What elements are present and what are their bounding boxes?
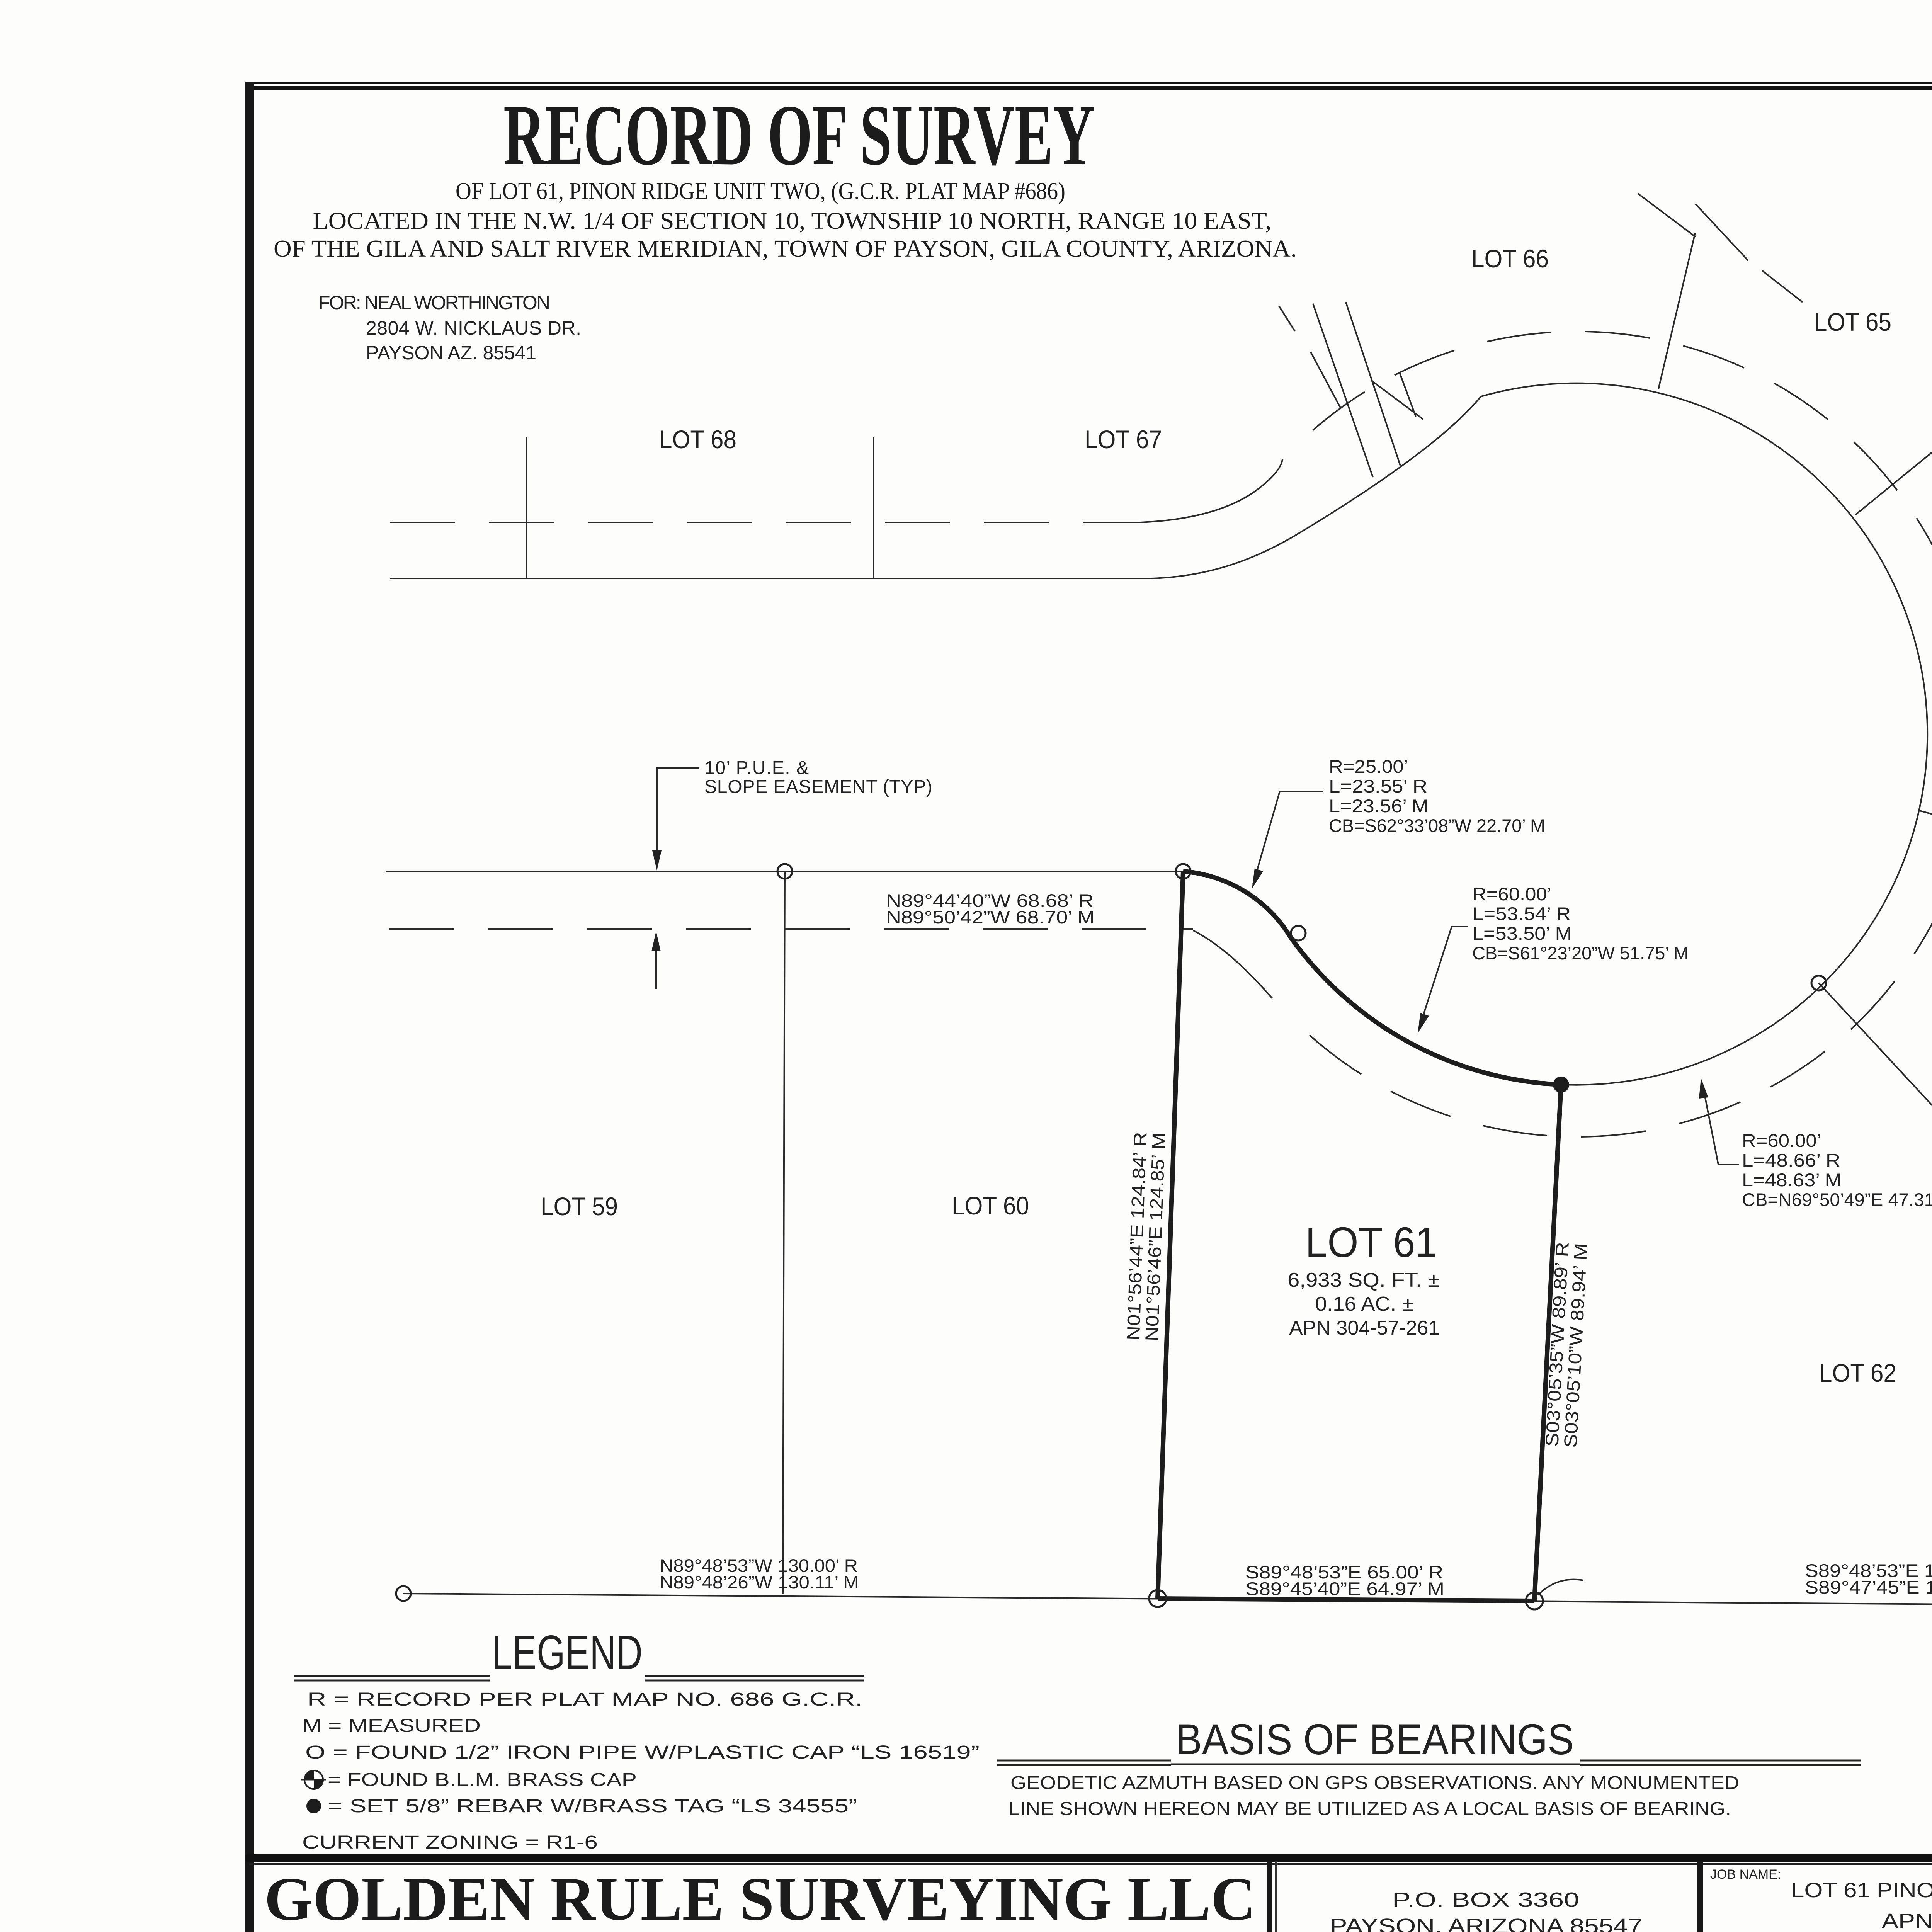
svg-text:OF LOT 61, PINON RIDGE UNIT TW: OF LOT 61, PINON RIDGE UNIT TWO, (G.C.R.…	[456, 178, 1065, 204]
svg-text:R = RECORD PER PLAT MAP NO.: R = RECORD PER PLAT MAP NO. 686 G.C.R.	[307, 1689, 862, 1710]
svg-text:LINE SHOWN HEREON MAY BE UTILI: LINE SHOWN HEREON MAY BE UTILIZED AS A L…	[1009, 1799, 1731, 1819]
svg-text:SLOPE EASEMENT (TYP): SLOPE EASEMENT (TYP)	[704, 777, 932, 797]
svg-text:= SET 5/8” REBAR W/BRASS TAG: = SET 5/8” REBAR W/BRASS TAG “LS 34555”	[328, 1796, 857, 1816]
svg-text:L=48.63’ M: L=48.63’ M	[1742, 1170, 1842, 1190]
svg-text:0.16 AC. ±: 0.16 AC. ±	[1315, 1293, 1414, 1315]
svg-text:O = FOUND 1/2” IRON PIPE W/: O = FOUND 1/2” IRON PIPE W/PLASTIC CAP “…	[305, 1742, 980, 1763]
svg-text:P.O. BOX 3360: P.O. BOX 3360	[1392, 1888, 1579, 1912]
svg-text:LOT 61 PINON RIDGE UNIT TWO: LOT 61 PINON RIDGE UNIT TWO	[1791, 1879, 1932, 1902]
svg-text:LOT 66: LOT 66	[1471, 244, 1549, 273]
svg-text:CB=S62°33’08”W 22.70’ M: CB=S62°33’08”W 22.70’ M	[1329, 815, 1545, 836]
svg-text:APN 304-57-261: APN 304-57-261	[1289, 1317, 1440, 1339]
svg-text:LOCATED IN THE N.W. 1/4 OF SEC: LOCATED IN THE N.W. 1/4 OF SECTION 10, T…	[313, 208, 1272, 234]
svg-text:L=23.56’ M: L=23.56’ M	[1329, 796, 1429, 816]
svg-text:OF THE GILA AND SALT RIVER MER: OF THE GILA AND SALT RIVER MERIDIAN, TOW…	[274, 236, 1297, 262]
svg-text:10’ P.U.E. &: 10’ P.U.E. &	[704, 758, 809, 778]
svg-text:GEODETIC AZMUTH BASED ON GPS O: GEODETIC AZMUTH BASED ON GPS OBSERVATION…	[1010, 1773, 1739, 1793]
svg-text:LOT 65: LOT 65	[1814, 308, 1891, 336]
svg-text:LOT 60: LOT 60	[952, 1191, 1029, 1220]
svg-text:APN 304-57-261: APN 304-57-261	[1882, 1910, 1932, 1932]
svg-text:S89°47’45”E 129.37’ M: S89°47’45”E 129.37’ M	[1805, 1577, 1932, 1597]
svg-text:L=53.54’ R: L=53.54’ R	[1472, 903, 1571, 924]
svg-text:LOT 67: LOT 67	[1085, 425, 1162, 454]
svg-text:LOT 62: LOT 62	[1819, 1359, 1896, 1387]
svg-text:CURRENT ZONING = R1-6: CURRENT ZONING = R1-6	[302, 1832, 598, 1853]
svg-text:PAYSON, ARIZONA 85547: PAYSON, ARIZONA 85547	[1330, 1915, 1643, 1932]
svg-text:CB=N69°50’49”E 47.31’ M: CB=N69°50’49”E 47.31’ M	[1742, 1189, 1932, 1210]
svg-text:2804 W. NICKLAUS DR.: 2804 W. NICKLAUS DR.	[366, 317, 581, 339]
svg-text:GOLDEN RULE SURVEYING LLC: GOLDEN RULE SURVEYING LLC	[264, 1864, 1256, 1932]
svg-text:LOT 68: LOT 68	[659, 425, 736, 454]
svg-text:R=25.00’: R=25.00’	[1329, 756, 1408, 777]
svg-text:FOR: NEAL WORTHINGTON: FOR: NEAL WORTHINGTON	[318, 292, 550, 313]
svg-text:LOT 59: LOT 59	[541, 1192, 618, 1221]
svg-text:= FOUND B.L.M. BRASS CAP: = FOUND B.L.M. BRASS CAP	[328, 1770, 637, 1790]
svg-text:S89°45’40”E 64.97’ M: S89°45’40”E 64.97’ M	[1245, 1578, 1444, 1599]
svg-text:BASIS OF BEARINGS: BASIS OF BEARINGS	[1176, 1715, 1574, 1764]
svg-text:M = MEASURED: M = MEASURED	[302, 1716, 481, 1736]
svg-text:L=48.66’ R: L=48.66’ R	[1742, 1150, 1840, 1170]
svg-text:R=60.00’: R=60.00’	[1472, 884, 1551, 904]
svg-text:L=53.50’ M: L=53.50’ M	[1472, 923, 1572, 944]
svg-text:CB=S61°23’20”W 51.75’ M: CB=S61°23’20”W 51.75’ M	[1472, 943, 1689, 963]
svg-text:JOB NAME:: JOB NAME:	[1710, 1867, 1781, 1882]
svg-text:6,933 SQ. FT. ±: 6,933 SQ. FT. ±	[1287, 1269, 1440, 1291]
svg-text:RECORD OF SURVEY: RECORD OF SURVEY	[503, 87, 1095, 183]
svg-text:N89°48’26”W 130.11’ M: N89°48’26”W 130.11’ M	[660, 1572, 859, 1592]
svg-text:LOT 61: LOT 61	[1305, 1219, 1437, 1266]
svg-text:LEGEND: LEGEND	[492, 1626, 643, 1680]
svg-text:R=60.00’: R=60.00’	[1742, 1130, 1821, 1151]
svg-text:N89°50’42”W 68.70’ M: N89°50’42”W 68.70’ M	[886, 907, 1095, 927]
svg-text:PAYSON AZ. 85541: PAYSON AZ. 85541	[366, 342, 536, 364]
svg-text:L=23.55’ R: L=23.55’ R	[1329, 776, 1427, 796]
